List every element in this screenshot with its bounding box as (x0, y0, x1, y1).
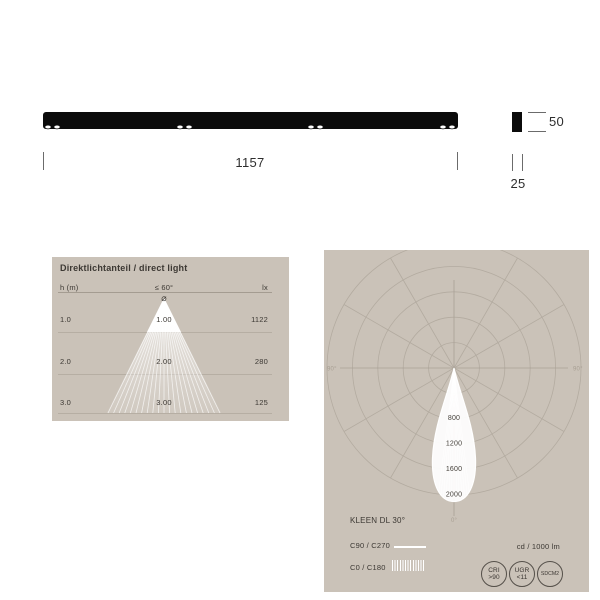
sdcm-badge-line1: SDCM2 (541, 571, 559, 578)
direct-light-panel: Direktlichtanteil / direct light h (m) ≤… (52, 257, 289, 421)
legend-c0-c180-label: C0 / C180 (350, 563, 386, 572)
ring-label-1600: 1600 (446, 466, 462, 473)
ugr-badge-line2: <11 (517, 574, 528, 581)
quality-badges: CRI >90 UGR <11 SDCM2 (481, 561, 563, 587)
axis-label-left: 90° (327, 367, 337, 373)
sdcm-badge: SDCM2 (537, 561, 563, 587)
row1-diameter: 1.00 (139, 315, 189, 324)
row3-lx: 125 (255, 398, 268, 407)
height-dimension-ticks (528, 113, 546, 132)
row2-height: 2.0 (60, 357, 71, 366)
height-dimension-value: 50 (549, 114, 564, 129)
cri-badge-line1: CRI (488, 567, 500, 574)
legend-c90-c270-label: C90 / C270 (350, 541, 390, 550)
width-dimension-ticks (513, 154, 523, 171)
row3-diameter: 3.00 (139, 398, 189, 407)
cri-badge: CRI >90 (481, 561, 507, 587)
polar-diagram-panel: 90° 90° 0° 800 1200 1600 2000 KLEEN DL 3… (324, 250, 589, 592)
legend-c0-hatched-swatch (392, 560, 426, 571)
light-cone-diagram (52, 257, 289, 421)
col-header-height: h (m) (60, 283, 79, 292)
axis-label-bottom: 0° (451, 518, 458, 524)
ring-label-1200: 1200 (446, 441, 462, 448)
row3-height: 3.0 (60, 398, 71, 407)
luminaire-profile (512, 112, 522, 132)
ugr-badge-line1: UGR (515, 567, 530, 574)
ring-label-2000: 2000 (446, 492, 462, 499)
row2-diameter: 2.00 (139, 357, 189, 366)
row2-lx: 280 (255, 357, 268, 366)
diameter-icon: ⌀ (134, 293, 194, 304)
ring-label-800: 800 (448, 415, 460, 422)
cri-badge-line2: >90 (488, 574, 499, 581)
unit-label: cd / 1000 lm (517, 542, 560, 551)
luminaire-body (43, 112, 458, 129)
product-name-label: KLEEN DL 30° (350, 516, 405, 525)
ugr-badge: UGR <11 (509, 561, 535, 587)
col-header-beam-angle: ≤ 60° (134, 283, 194, 292)
row1-height: 1.0 (60, 315, 71, 324)
legend-c90-solid-line-swatch (394, 546, 426, 548)
row1-lx: 1122 (251, 315, 268, 324)
axis-label-right: 90° (573, 367, 583, 373)
width-dimension-value: 25 (503, 176, 533, 191)
col-header-lx: lx (262, 283, 268, 292)
length-dimension-value: 1157 (200, 155, 300, 170)
